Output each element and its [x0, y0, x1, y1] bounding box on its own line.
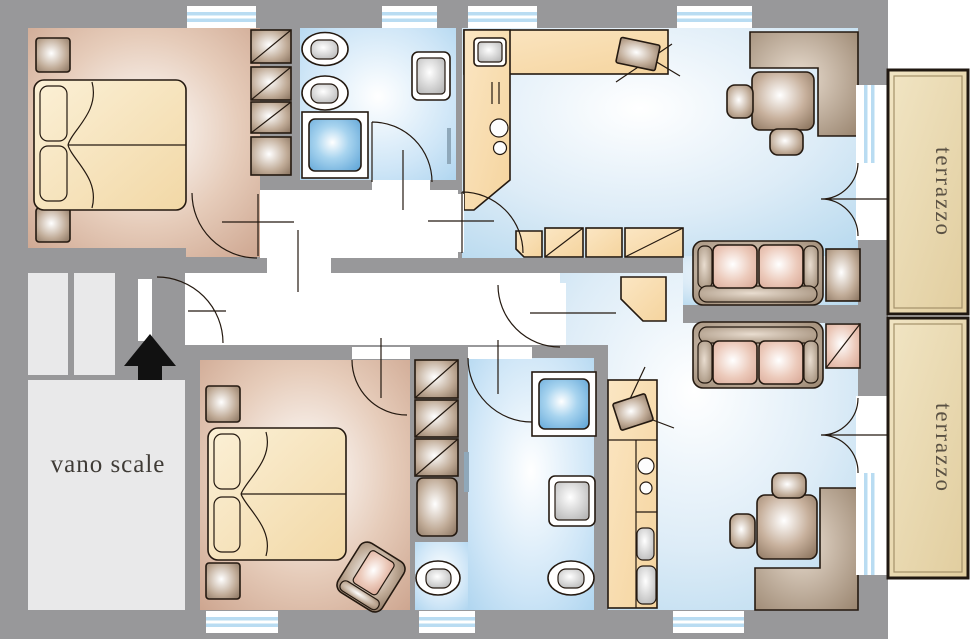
- nightstand: [206, 563, 240, 599]
- sink: [412, 52, 450, 100]
- corridor-1: [260, 190, 458, 258]
- stair-closet-2: [74, 273, 115, 375]
- sink: [549, 476, 595, 526]
- window: [856, 85, 890, 163]
- window: [673, 611, 744, 633]
- terrace-top: terrazzo: [888, 70, 968, 314]
- kitchen-sink: [637, 528, 654, 560]
- sideboard-row: [516, 228, 683, 257]
- floor-plan-canvas: terrazzo terrazzo vano scale: [0, 0, 972, 639]
- nightstand: [36, 38, 70, 72]
- kitchen-sink: [637, 566, 656, 604]
- chair: [770, 129, 803, 155]
- double-bed: [34, 80, 186, 210]
- toilet: [548, 561, 594, 595]
- stairwell-label: vano scale: [51, 451, 166, 478]
- nightstand: [206, 386, 240, 422]
- chair: [727, 85, 753, 118]
- table: [757, 495, 817, 559]
- chair: [772, 473, 806, 498]
- sofa-cushion: [713, 245, 757, 288]
- bidet: [302, 76, 348, 110]
- shower: [302, 112, 368, 178]
- window: [206, 611, 278, 633]
- radiator: [464, 452, 469, 492]
- corridor-2: [150, 273, 560, 345]
- sofa-cushion: [759, 341, 803, 384]
- radiator: [447, 128, 451, 164]
- wardrobe: [251, 30, 291, 175]
- table: [752, 72, 814, 130]
- burner: [490, 119, 508, 137]
- side-table: [826, 249, 860, 301]
- window: [382, 6, 437, 28]
- sofa-2: [693, 322, 823, 388]
- sofa-cushion: [759, 245, 803, 288]
- side-table-2: [826, 324, 860, 368]
- double-bed: [208, 428, 346, 560]
- floor-plan: terrazzo terrazzo vano scale: [0, 0, 972, 639]
- toilet: [302, 33, 348, 66]
- window: [677, 6, 752, 28]
- terrace-bottom-label: terrazzo: [931, 403, 956, 493]
- sofa-1: [693, 241, 823, 305]
- burner: [494, 142, 507, 155]
- nightstand: [36, 208, 70, 242]
- window: [419, 611, 475, 633]
- sofa-cushion: [713, 341, 757, 384]
- terrace-top-label: terrazzo: [931, 147, 956, 237]
- stair-closet-1: [28, 273, 68, 375]
- shower: [532, 372, 596, 436]
- window: [187, 6, 256, 28]
- window: [468, 6, 537, 28]
- window: [856, 473, 890, 575]
- burner: [638, 458, 654, 474]
- wardrobe: [415, 360, 458, 536]
- burner: [640, 482, 652, 494]
- chair: [730, 514, 755, 548]
- terrace-bottom: terrazzo: [888, 318, 968, 578]
- room-stairwell: [28, 380, 185, 610]
- toilet: [416, 561, 460, 595]
